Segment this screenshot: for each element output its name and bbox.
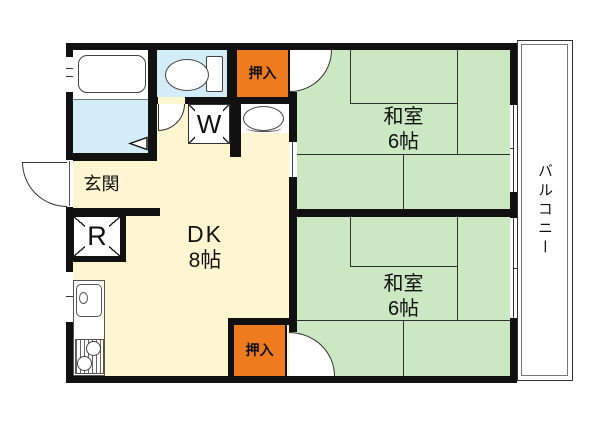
wall-bath-toilet — [148, 50, 157, 161]
wall-dk-washitsu — [289, 92, 297, 142]
wall-washroom-genkan — [66, 153, 157, 161]
kitchen-faucet — [79, 292, 88, 304]
wall-segment — [510, 43, 517, 105]
closet-top-label: 押入 — [237, 50, 288, 97]
wash-basin-lip — [246, 124, 282, 132]
washitsu-top-label: 和室 6帖 — [297, 50, 510, 209]
wall-dk-washitsu — [289, 177, 297, 332]
dk-washitsu-sliding-door — [289, 142, 297, 177]
wall-right-of-washer — [230, 97, 241, 157]
stove-burner — [86, 341, 101, 356]
washitsu-bottom-label: 和室 6帖 — [297, 217, 510, 376]
balcony-label: バルコニー — [521, 44, 568, 376]
window-tick — [66, 68, 73, 69]
floor-plan: バルコニー 押入 押入 — [0, 0, 600, 425]
wall-segment — [510, 318, 517, 383]
window-tick — [66, 76, 73, 77]
wall-bottom — [66, 376, 517, 383]
genkan-label: 玄関 — [73, 161, 130, 208]
wall-bath-washroom-line — [73, 99, 148, 100]
closet-bottom: 押入 — [234, 325, 287, 376]
closet-top: 押入 — [237, 50, 290, 97]
wall-top — [66, 43, 517, 50]
wall-segment — [66, 43, 73, 57]
wall-between-washitsu — [289, 209, 517, 217]
kitchen-window — [66, 272, 73, 322]
dk-size: 8帖 — [189, 248, 222, 274]
bathtub — [78, 55, 146, 93]
wall-segment — [66, 92, 73, 160]
closet-bottom-frame — [228, 318, 290, 325]
window-tick — [66, 296, 73, 297]
washitsu-bottom-name: 和室 — [384, 272, 424, 297]
washitsu-top-name: 和室 — [384, 105, 424, 130]
wall-left-of-closet — [227, 43, 237, 104]
fridge-label: R — [85, 221, 109, 252]
stove-burner — [77, 356, 92, 371]
dk-name: DK — [187, 220, 223, 249]
toilet-bowl — [165, 59, 209, 91]
washitsu-top-size: 6帖 — [388, 130, 419, 155]
dk-label: DK 8帖 — [135, 218, 275, 276]
washer-space: W — [188, 104, 230, 144]
washitsu-bottom-size: 6帖 — [388, 297, 419, 322]
wall-segment — [66, 322, 73, 383]
balcony-door-tick — [513, 268, 517, 269]
closet-bottom-label: 押入 — [234, 325, 285, 376]
sliding-door-rail — [292, 142, 293, 177]
bathroom-window — [66, 57, 73, 92]
genkan-door-line — [69, 161, 70, 206]
wall-toilet-bottom — [148, 97, 158, 104]
balcony-door-tick — [510, 148, 514, 149]
genkan-entry-door-arc — [22, 162, 67, 207]
fridge-space: R — [74, 217, 120, 256]
washroom-door-marker — [128, 136, 148, 151]
washer-label: W — [195, 109, 224, 140]
wall-toilet-bottom — [185, 97, 297, 104]
